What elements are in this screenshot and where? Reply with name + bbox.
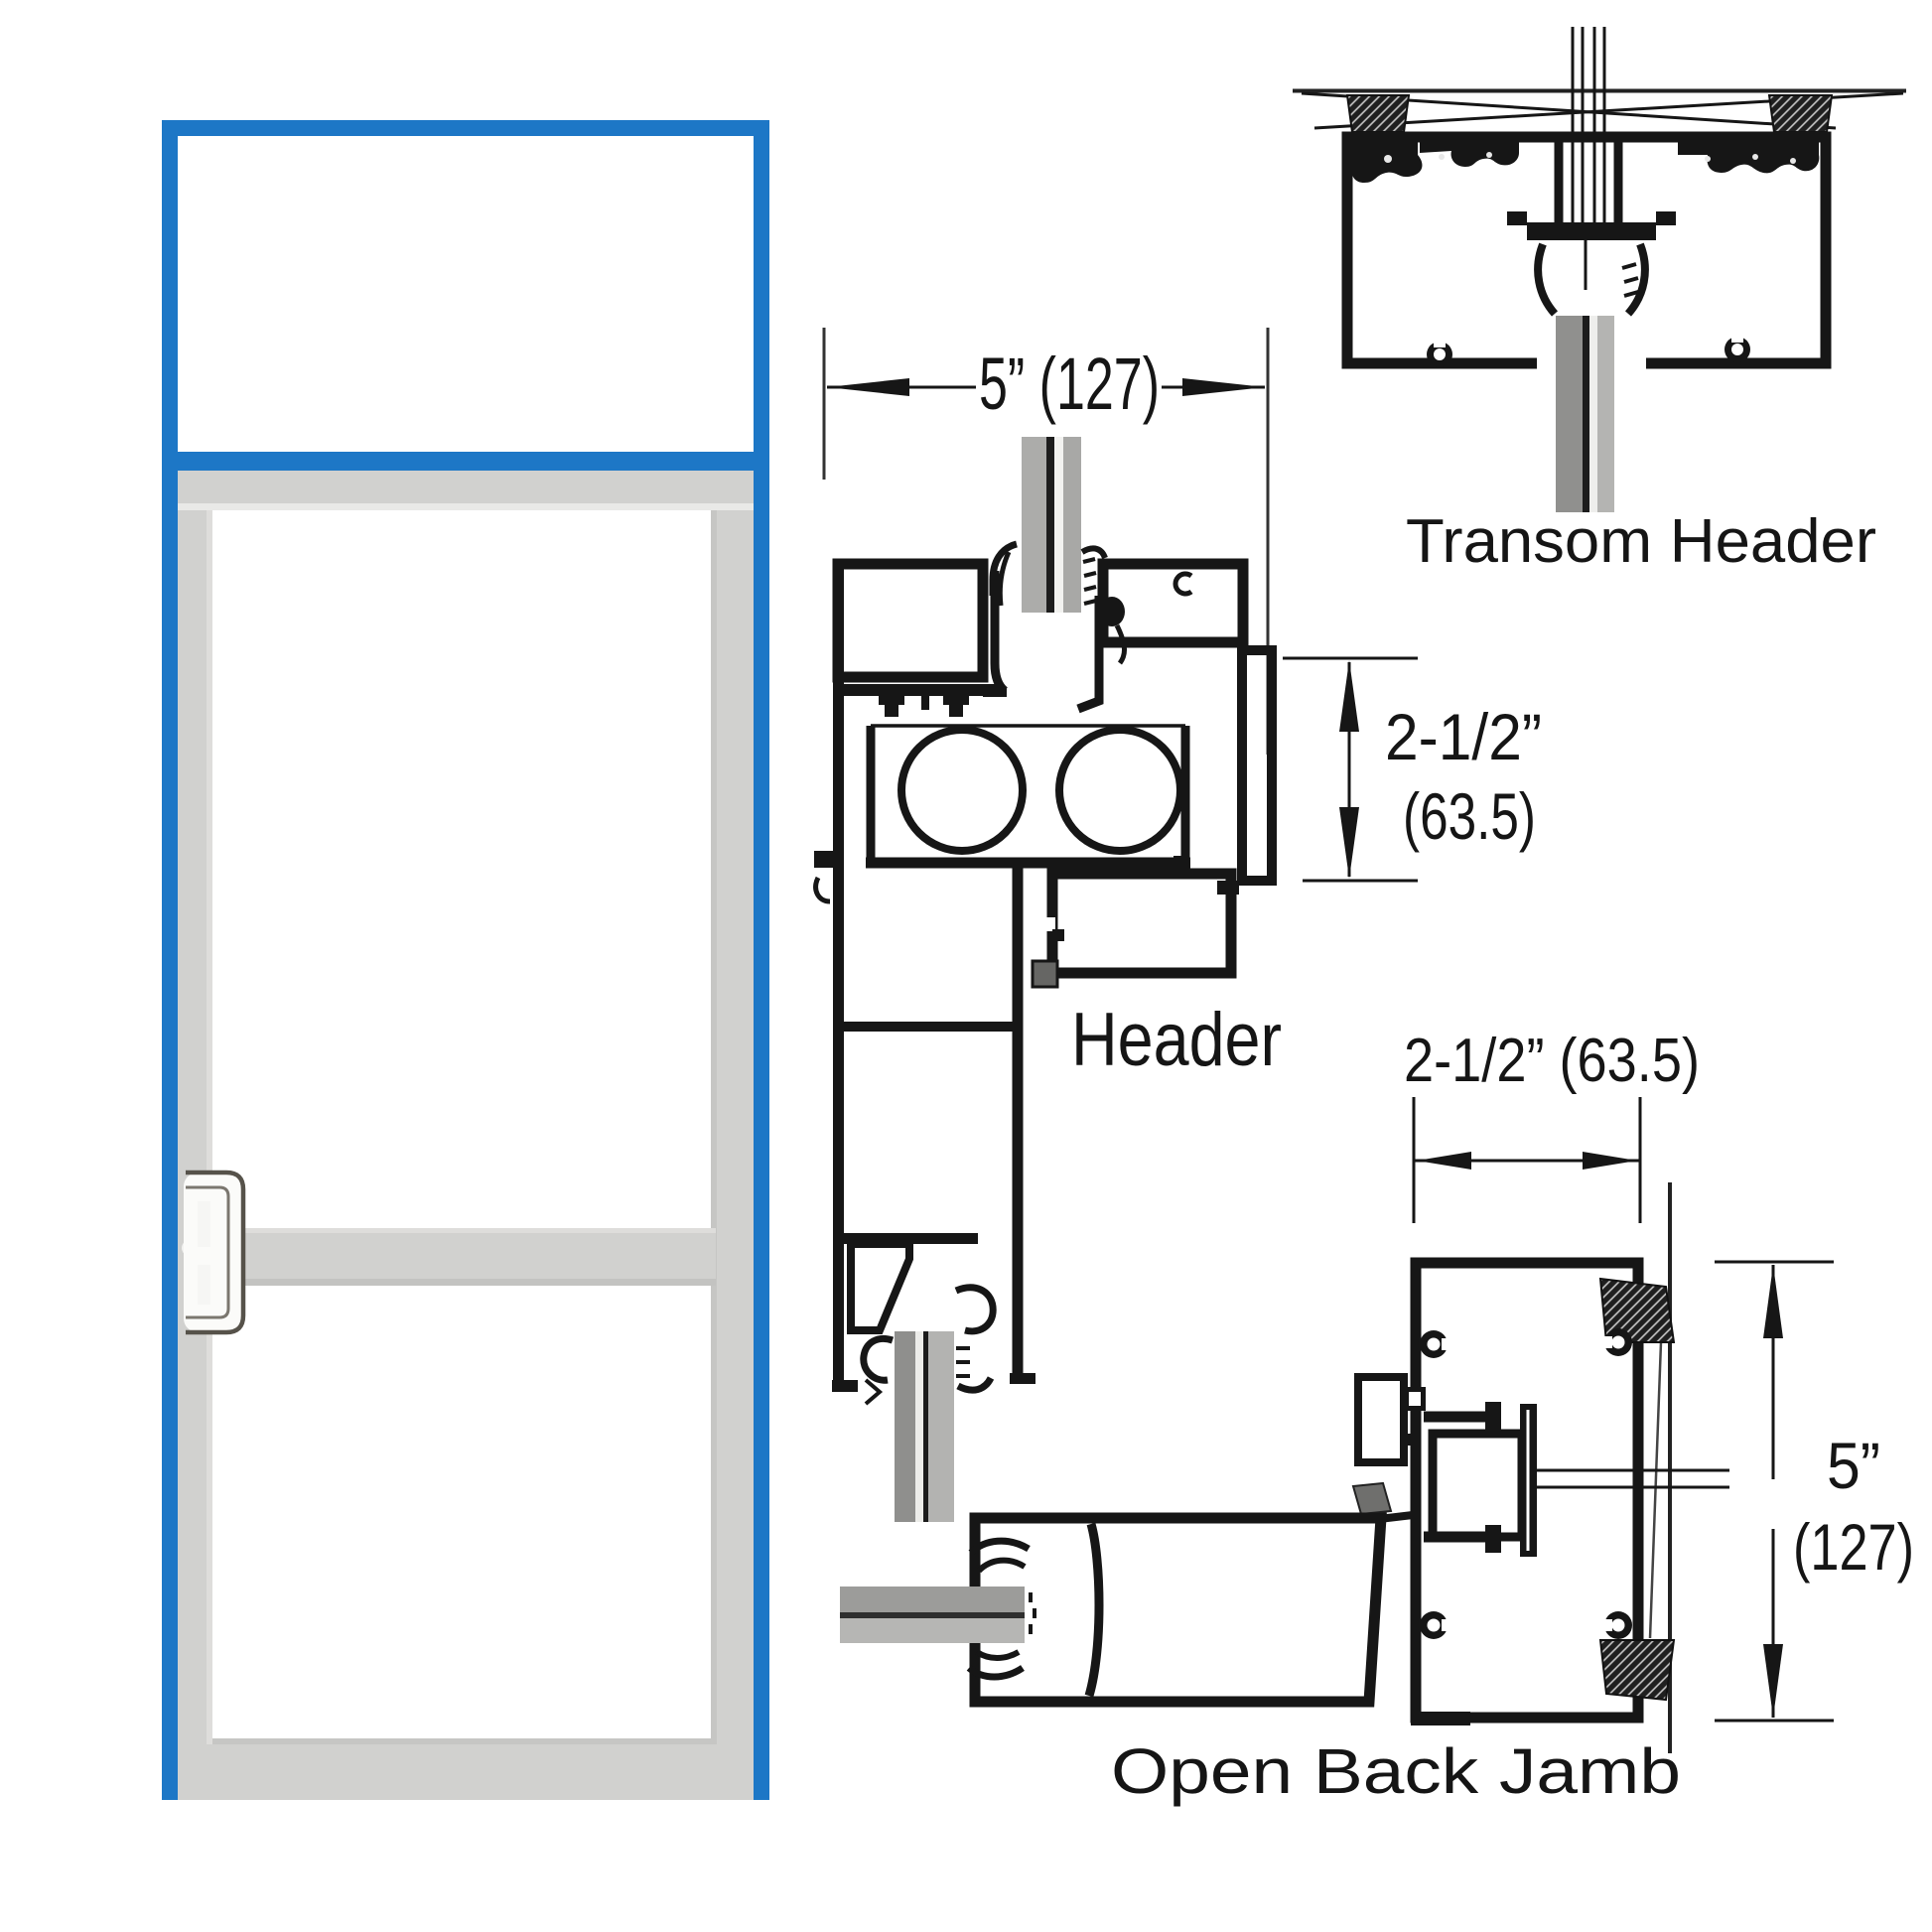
svg-text:2-1/2” (63.5): 2-1/2” (63.5) [1404, 1027, 1700, 1095]
svg-text:Header: Header [1071, 998, 1282, 1082]
svg-text:2-1/2”: 2-1/2” [1385, 700, 1542, 773]
svg-text:5” (127): 5” (127) [979, 343, 1160, 425]
svg-text:Transom Header: Transom Header [1406, 507, 1876, 576]
svg-text:(63.5): (63.5) [1403, 779, 1536, 853]
svg-text:5”: 5” [1827, 1429, 1880, 1502]
svg-text:Open Back Jamb: Open Back Jamb [1111, 1735, 1681, 1807]
svg-text:(127): (127) [1793, 1510, 1914, 1584]
